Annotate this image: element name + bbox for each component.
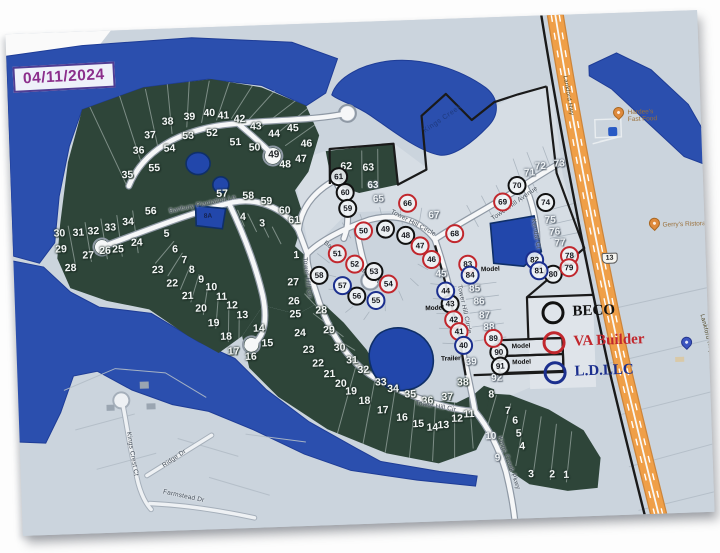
legend-circle-icon xyxy=(541,301,565,325)
date-stamp: 04/11/2024 xyxy=(12,62,115,93)
legend-item: L.D.LLC xyxy=(543,358,646,385)
legend-label: BECO xyxy=(572,302,615,320)
map-graphics xyxy=(5,10,714,536)
legend-item: BECO xyxy=(541,298,644,325)
legend-circle-icon xyxy=(542,331,566,355)
scanned-map-page: 3536373839404142434445464748495051525354… xyxy=(0,0,720,553)
map-scan: 3536373839404142434445464748495051525354… xyxy=(5,10,714,536)
legend-label: VA Builder xyxy=(573,331,645,350)
legend-item: VA Builder xyxy=(542,328,645,355)
legend: BECO VA Builder L.D.LLC xyxy=(541,298,646,385)
legend-label: L.D.LLC xyxy=(574,362,634,381)
legend-circle-icon xyxy=(543,361,567,385)
map-world: 3536373839404142434445464748495051525354… xyxy=(5,10,714,536)
